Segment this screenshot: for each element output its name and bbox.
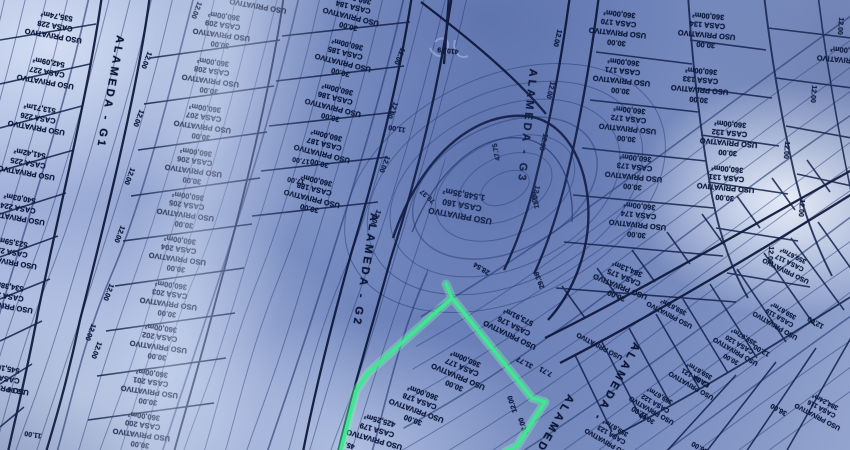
site-plan-photo: ALAMEDA - G1ALAMEDA - G2ALAMEDA - G3ALAM… xyxy=(0,0,850,450)
highlight-layer xyxy=(0,0,850,450)
highlighted-parcel-glow xyxy=(341,284,545,450)
